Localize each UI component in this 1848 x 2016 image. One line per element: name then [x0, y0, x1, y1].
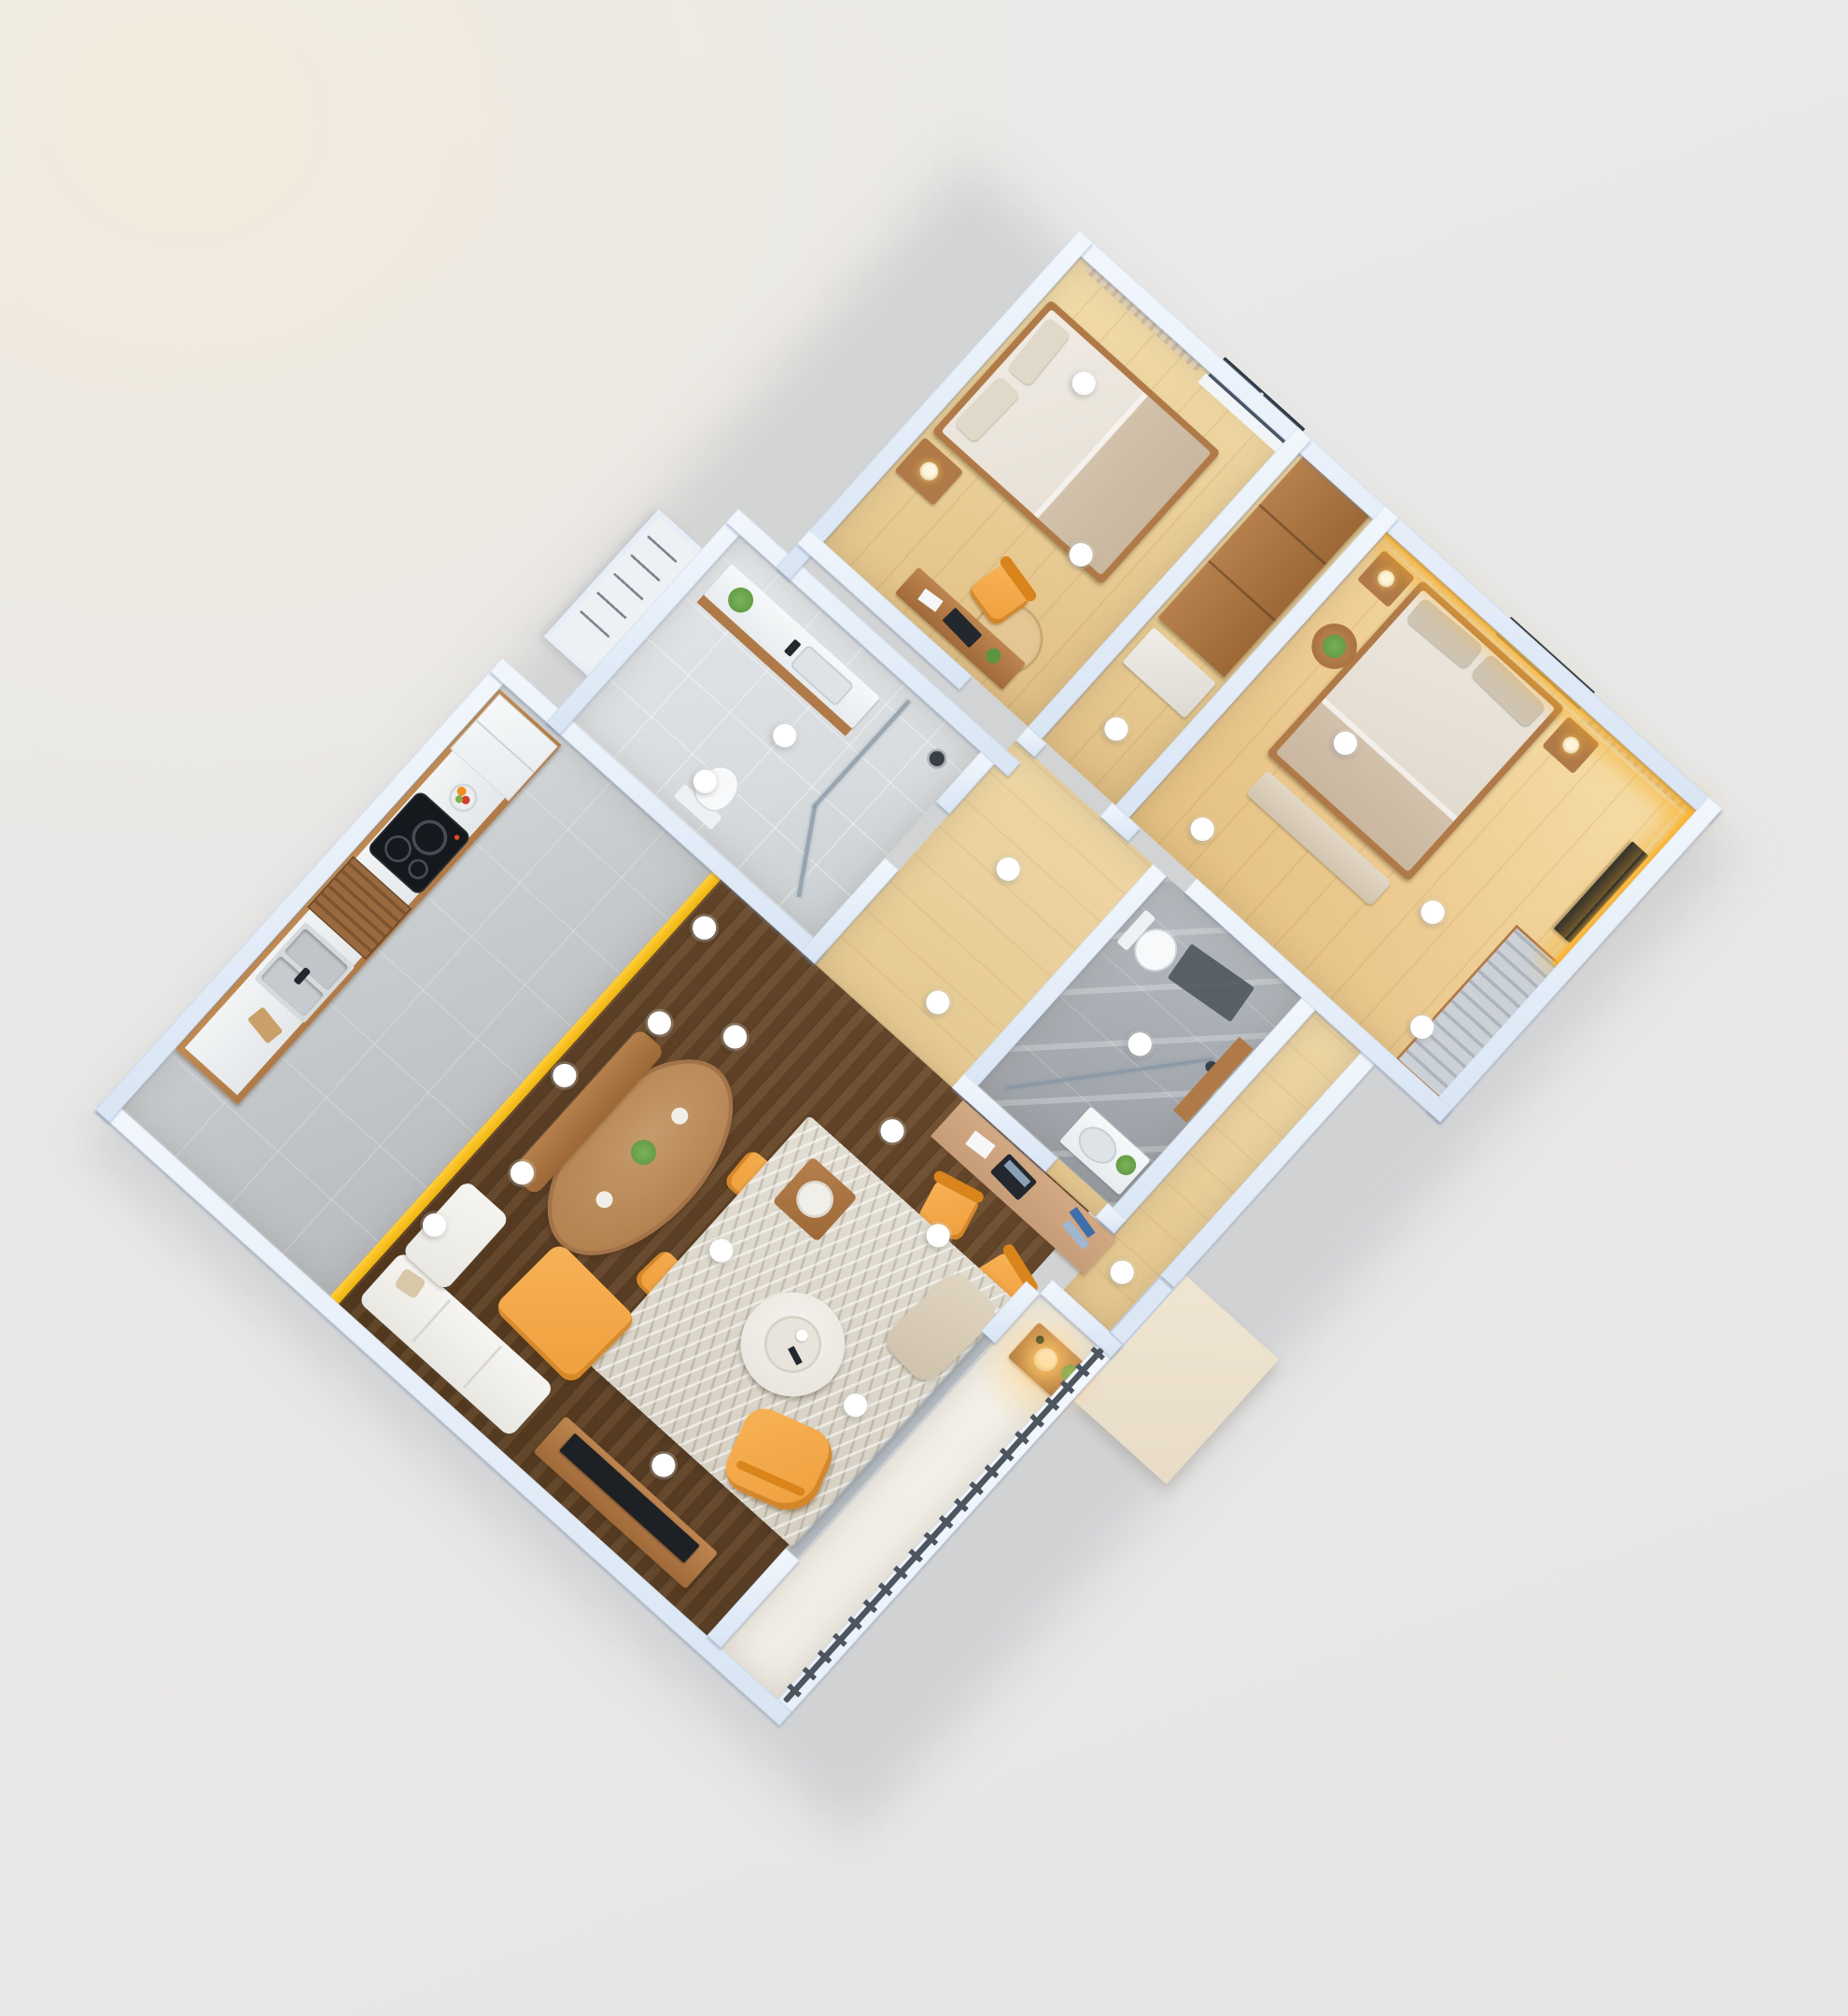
- nav-hotspot[interactable]: [548, 1059, 581, 1093]
- nav-hotspot[interactable]: [418, 1209, 452, 1242]
- nav-hotspot[interactable]: [1064, 539, 1098, 572]
- nav-hotspot[interactable]: [647, 1449, 680, 1482]
- nav-hotspot[interactable]: [689, 765, 722, 799]
- nav-hotspot[interactable]: [705, 1234, 738, 1267]
- nav-hotspot[interactable]: [921, 1219, 955, 1253]
- nav-hotspot[interactable]: [1105, 1255, 1139, 1289]
- nav-hotspot[interactable]: [1185, 813, 1219, 847]
- nav-hotspot[interactable]: [1067, 367, 1100, 400]
- nav-hotspot[interactable]: [1099, 712, 1133, 746]
- nav-hotspot[interactable]: [768, 720, 802, 753]
- nav-hotspot[interactable]: [1124, 1028, 1157, 1061]
- nav-hotspot[interactable]: [688, 911, 721, 945]
- nav-hotspot[interactable]: [1416, 896, 1449, 930]
- nav-hotspot[interactable]: [1329, 727, 1363, 761]
- render-canvas: [0, 0, 1848, 2016]
- nav-hotspot[interactable]: [1406, 1011, 1439, 1044]
- nav-hotspot[interactable]: [839, 1389, 873, 1422]
- nav-hotspot[interactable]: [506, 1156, 539, 1190]
- floor-plan: [49, 100, 1771, 1841]
- nav-hotspot[interactable]: [991, 852, 1025, 886]
- nav-hotspot[interactable]: [875, 1114, 909, 1148]
- nav-hotspot[interactable]: [921, 986, 955, 1019]
- hotspot-layer: [49, 100, 1771, 1841]
- nav-hotspot[interactable]: [719, 1020, 752, 1054]
- nav-hotspot[interactable]: [643, 1006, 677, 1040]
